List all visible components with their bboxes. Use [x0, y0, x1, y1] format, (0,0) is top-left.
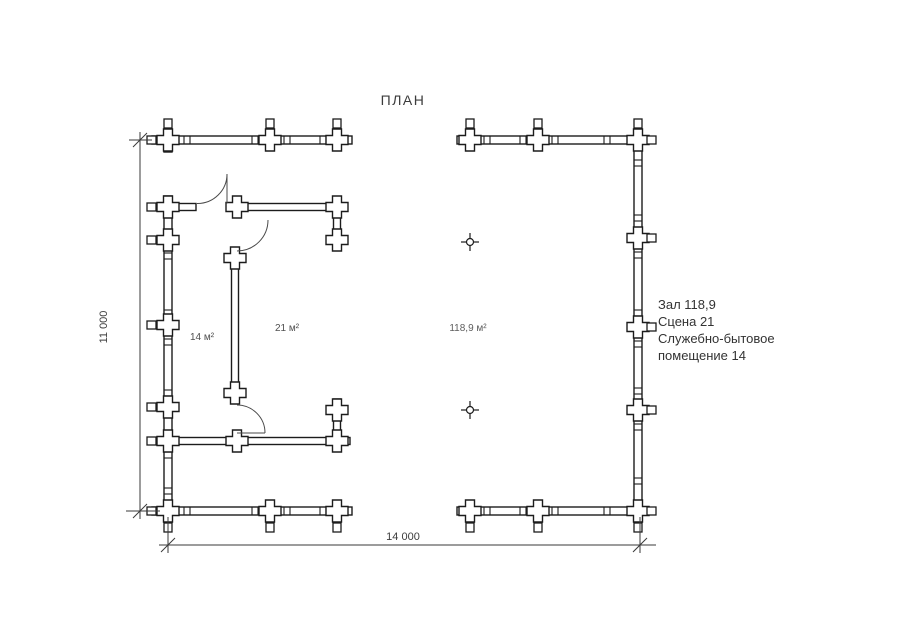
wall-top-right	[457, 136, 644, 144]
door-swing-bottom	[237, 405, 265, 433]
door-swing-middle	[237, 220, 268, 251]
wall-room-divider	[232, 252, 239, 400]
dim-horizontal-label: 14 000	[386, 531, 420, 543]
plan-title: ПЛАН	[381, 92, 426, 108]
floor-plan-page: ПЛАН 11 000 14 000 14 м² 21 м² 118,9 м² …	[0, 0, 900, 636]
room-label-small: 14 м²	[190, 332, 215, 343]
hall-area-label: 118,9 м²	[449, 323, 487, 334]
wall-room-bottom	[172, 438, 350, 445]
legend: Зал 118,9 Сцена 21 Служебно-бытовое поме…	[658, 297, 775, 363]
legend-line: Служебно-бытовое	[658, 331, 775, 346]
legend-line: Сцена 21	[658, 314, 714, 329]
room-label-medium: 21 м²	[275, 323, 300, 334]
log-end-caps	[147, 119, 656, 532]
column-marker-icon	[461, 233, 479, 251]
exterior-walls	[152, 136, 644, 515]
dim-vertical-label: 11 000	[98, 311, 110, 344]
wall-bottom-right	[457, 507, 644, 515]
legend-line: помещение 14	[658, 348, 746, 363]
column-marker-icon	[461, 401, 479, 419]
door-swing-top	[197, 174, 227, 204]
floor-plan-drawing: ПЛАН 11 000 14 000 14 м² 21 м² 118,9 м² …	[0, 0, 900, 636]
legend-line: Зал 118,9	[658, 297, 716, 312]
